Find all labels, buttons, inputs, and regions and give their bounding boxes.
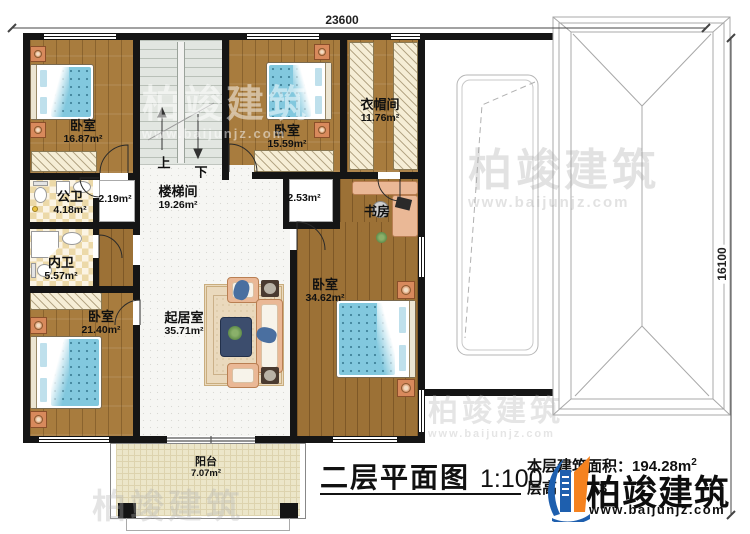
wall-segment xyxy=(93,258,99,293)
room-area: 19.26m² xyxy=(158,199,197,211)
room-label-bedroom-tl: 卧室 16.87m² xyxy=(63,119,102,145)
wall-segment xyxy=(283,222,340,229)
room-area: 5.57m² xyxy=(44,270,77,282)
room-label-public-bath: 公卫 4.18m² xyxy=(53,190,86,216)
room-area: 16.87m² xyxy=(63,133,102,145)
room-label-bedroom-r: 卧室 34.62m² xyxy=(305,278,344,304)
balcony-post-left xyxy=(118,503,136,518)
nightstand xyxy=(30,317,47,334)
wall-segment xyxy=(133,265,140,293)
room-label-bedroom-tm: 卧室 15.59m² xyxy=(267,124,306,150)
room-area: 15.59m² xyxy=(267,138,306,150)
stairs-down-label: 下 xyxy=(194,162,207,181)
wall-segment xyxy=(252,172,340,179)
dimension-top: 23600 xyxy=(322,13,361,27)
bed-headboard xyxy=(31,337,37,408)
floor-drain-icon xyxy=(32,206,38,212)
bed-headboard xyxy=(31,65,37,119)
room-name: 卧室 xyxy=(305,278,344,292)
pillow xyxy=(314,67,323,87)
pillow xyxy=(39,96,48,115)
room-area: 4.18m² xyxy=(53,204,86,216)
nightstand xyxy=(397,281,415,299)
drawing-title-block: 二层平面图1:100 xyxy=(320,456,543,496)
watermark: 柏竣建筑 www.baijunjz.com xyxy=(428,396,564,440)
room-label-balcony: 阳台 7.07m² xyxy=(191,457,221,479)
bed-sheet xyxy=(51,67,69,117)
pillow xyxy=(398,306,407,333)
wall-segment xyxy=(222,33,229,180)
armchair-bottom xyxy=(227,363,259,388)
wall-segment xyxy=(133,293,140,300)
stair-stringer xyxy=(177,42,185,163)
plant-icon xyxy=(228,326,242,340)
wall-segment xyxy=(133,222,140,235)
company-url: www.baijunjz.com xyxy=(589,502,725,517)
watermark-url: www.baijunjz.com xyxy=(428,428,564,440)
wall-segment xyxy=(23,286,140,293)
drawing-title: 二层平面图 xyxy=(320,462,470,493)
room-area: 34.62m² xyxy=(305,292,344,304)
closet-bedroom-tl xyxy=(31,151,97,172)
room-name: 卧室 xyxy=(81,310,120,324)
room-name: 公卫 xyxy=(53,190,86,204)
room-name: 楼梯间 xyxy=(158,185,197,199)
area-label-alcove-right: 2.53m² xyxy=(287,192,320,204)
area-label-alcove-left: 2.19m² xyxy=(98,193,131,205)
room-label-bedroom-bl: 卧室 21.40m² xyxy=(81,310,120,336)
room-name: 书房 xyxy=(364,205,390,219)
bed-bedroom-tl xyxy=(30,64,94,120)
window xyxy=(418,390,425,432)
bed-sheet xyxy=(293,65,311,117)
room-label-stairwell: 楼梯间 19.26m² xyxy=(158,185,197,211)
room-name: 阳台 xyxy=(191,457,221,469)
wall-segment xyxy=(133,33,140,180)
nightstand xyxy=(30,411,47,428)
wall-segment xyxy=(290,250,297,436)
room-area: 2.53m² xyxy=(287,192,320,204)
room-name: 内卫 xyxy=(44,256,77,270)
wall-segment xyxy=(23,173,100,180)
nightstand xyxy=(397,379,415,397)
side-table xyxy=(261,280,279,297)
window xyxy=(333,436,397,443)
room-name: 卧室 xyxy=(63,119,102,133)
closet-bedroom-tm xyxy=(254,150,334,172)
bed-sheet xyxy=(377,303,395,375)
window xyxy=(391,33,420,40)
room-name: 衣帽间 xyxy=(360,98,399,112)
room-area: 35.71m² xyxy=(164,325,203,337)
plant-icon xyxy=(376,232,387,243)
floor-vestibule xyxy=(99,229,133,293)
pillow xyxy=(314,95,323,115)
window xyxy=(418,237,425,277)
room-label-private-bath: 内卫 5.57m² xyxy=(44,256,77,282)
stairs-up-label: 上 xyxy=(157,153,170,172)
wall-segment xyxy=(400,172,425,179)
wall-segment xyxy=(418,389,553,396)
nightstand xyxy=(314,44,330,60)
balcony-step-outline xyxy=(126,518,290,531)
bed-bedroom-bl xyxy=(30,336,102,409)
room-area: 11.76m² xyxy=(360,112,399,124)
wall-segment xyxy=(333,172,340,229)
room-name: 起居室 xyxy=(164,311,203,325)
sink-icon xyxy=(62,232,82,245)
room-area: 21.40m² xyxy=(81,324,120,336)
room-name: 卧室 xyxy=(267,124,306,138)
bed-headboard xyxy=(409,301,415,377)
wall-segment xyxy=(93,173,99,178)
bed-bedroom-r xyxy=(336,300,416,378)
closet-bedroom-bl xyxy=(30,292,102,310)
room-area: 7.07m² xyxy=(191,469,221,480)
side-table xyxy=(261,367,279,384)
watermark-name: 柏竣建筑 xyxy=(428,396,564,428)
room-label-study: 书房 xyxy=(364,205,390,219)
pillow xyxy=(39,342,48,368)
wall-segment xyxy=(133,325,140,436)
nightstand xyxy=(30,46,46,62)
nightstand xyxy=(30,122,46,138)
window xyxy=(39,436,109,443)
dimension-right: 16100 xyxy=(715,244,729,283)
floor-balcony xyxy=(116,444,300,516)
bed-headboard xyxy=(325,63,331,119)
title-underline xyxy=(320,493,521,495)
bed-sheet xyxy=(51,339,69,406)
pillow xyxy=(398,344,407,371)
balcony-post-right xyxy=(280,503,298,518)
window xyxy=(247,33,319,40)
wall-segment xyxy=(340,33,347,179)
room-area: 2.19m² xyxy=(98,193,131,205)
pillow xyxy=(39,69,48,88)
wall-segment xyxy=(23,33,30,443)
toilet-tank xyxy=(31,263,36,278)
room-label-living: 起居室 35.71m² xyxy=(164,311,203,337)
toilet-tank xyxy=(33,181,48,186)
window xyxy=(44,33,116,40)
wall-segment xyxy=(23,222,140,229)
pillow xyxy=(39,377,48,403)
room-label-cloakroom: 衣帽间 11.76m² xyxy=(360,98,399,124)
floor-plan-canvas: 卧室 16.87m² 卧室 15.59m² 衣帽间 11.76m² 楼梯间 19… xyxy=(0,0,750,534)
wall-segment xyxy=(93,229,99,235)
watermark-name: 柏竣建筑 xyxy=(468,148,660,194)
desk-top xyxy=(352,181,418,195)
toilet-icon xyxy=(34,187,47,203)
watermark: 柏竣建筑 www.baijunjz.com xyxy=(468,148,660,211)
nightstand xyxy=(314,122,330,138)
wall-segment xyxy=(135,173,140,229)
watermark-url: www.baijunjz.com xyxy=(468,194,660,211)
bed-bedroom-tm xyxy=(266,62,332,120)
